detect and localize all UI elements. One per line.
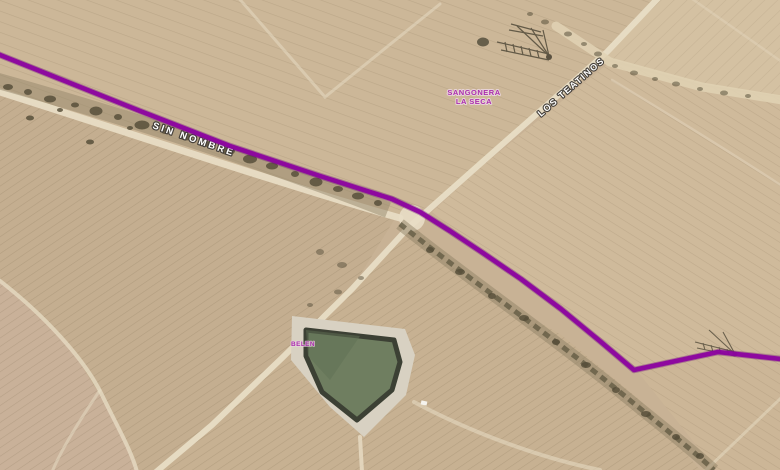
pond-area-label: BELEN xyxy=(291,341,315,348)
map-canvas[interactable]: SIN NOMBRE LOS TEATINOS SANGONERA LA SEC… xyxy=(0,0,780,470)
satellite-map-view[interactable]: SIN NOMBRE LOS TEATINOS SANGONERA LA SEC… xyxy=(0,0,780,470)
place-label-line1: SANGONERA xyxy=(447,88,500,97)
place-label-line2: LA SECA xyxy=(456,97,492,106)
